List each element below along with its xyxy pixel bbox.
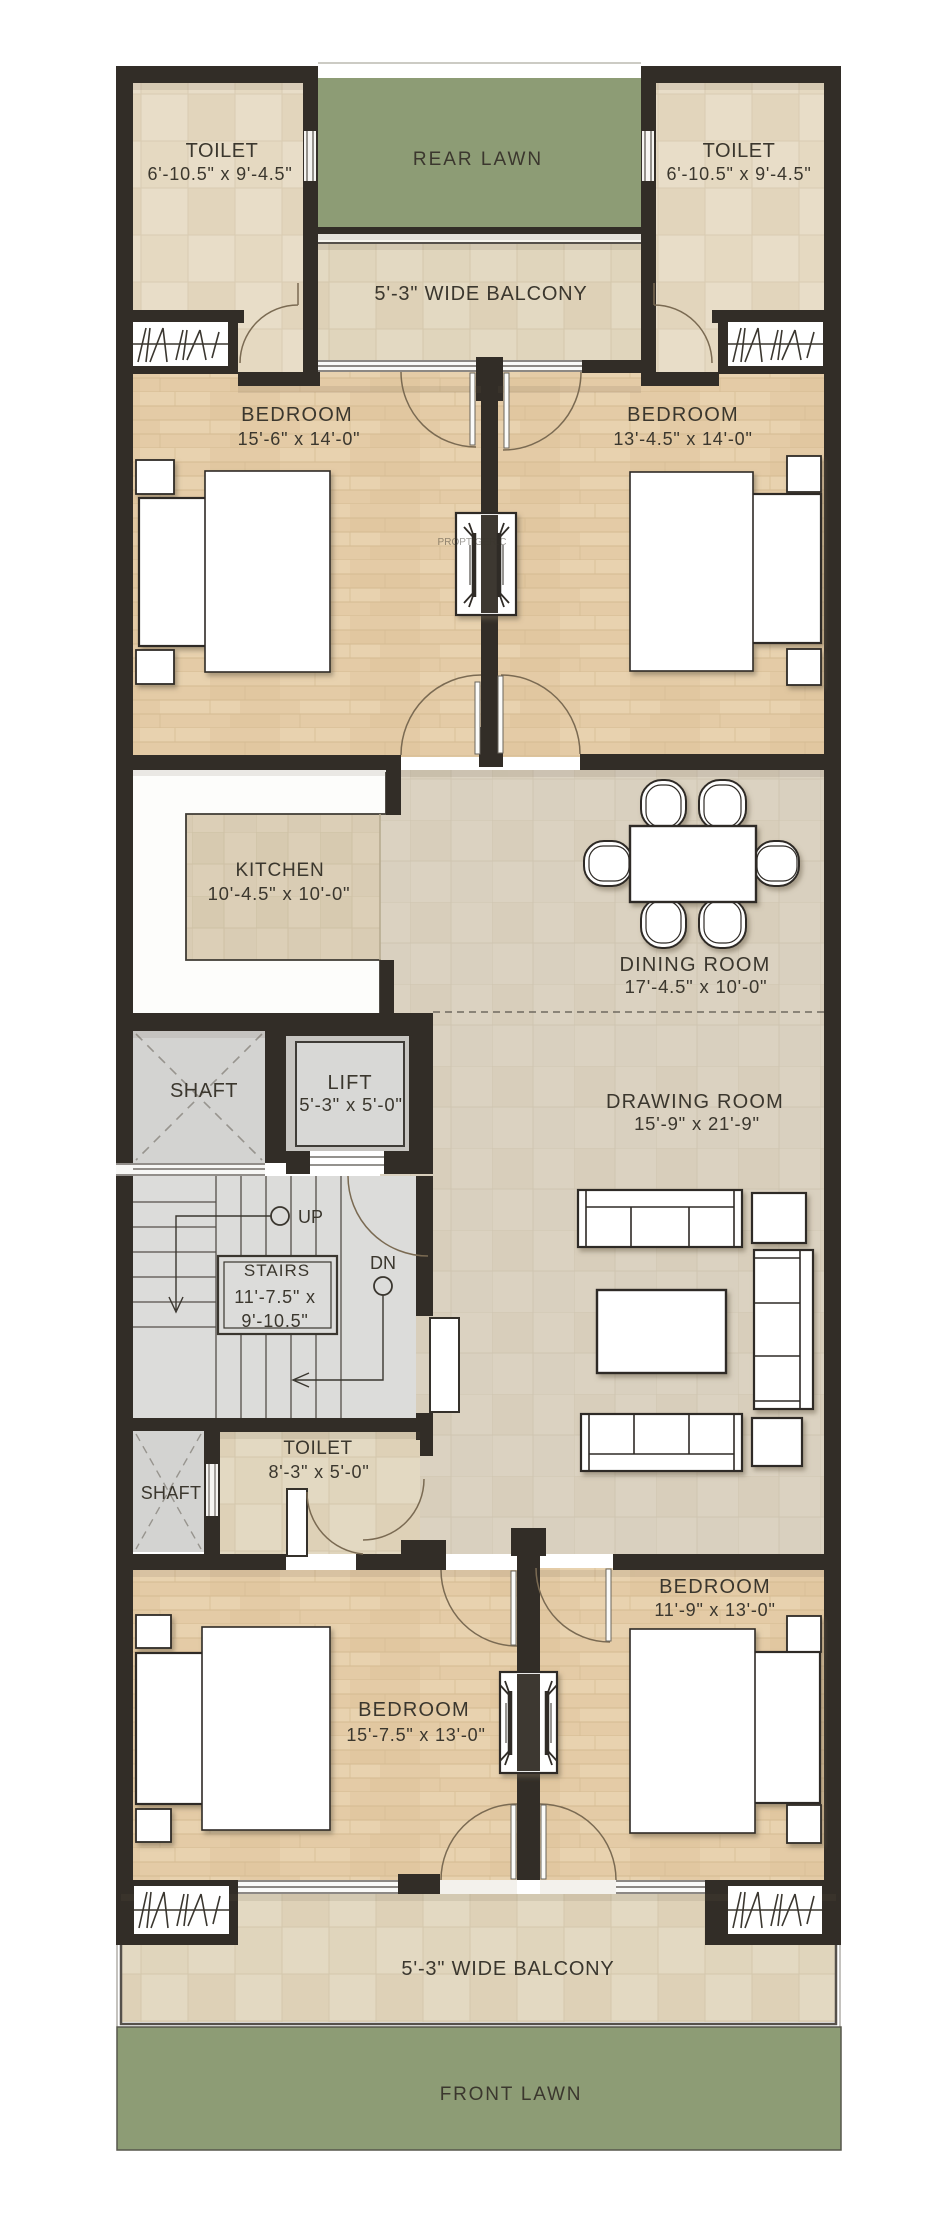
svg-text:6'-10.5" x 9'-4.5": 6'-10.5" x 9'-4.5" bbox=[666, 164, 811, 184]
svg-text:SHAFT: SHAFT bbox=[170, 1080, 238, 1102]
svg-text:BEDROOM: BEDROOM bbox=[627, 404, 739, 426]
svg-text:STAIRS: STAIRS bbox=[244, 1261, 310, 1280]
svg-text:6'-10.5" x 9'-4.5": 6'-10.5" x 9'-4.5" bbox=[147, 164, 292, 184]
svg-text:13'-4.5" x 14'-0": 13'-4.5" x 14'-0" bbox=[613, 429, 752, 449]
svg-text:17'-4.5" x 10'-0": 17'-4.5" x 10'-0" bbox=[625, 976, 768, 997]
svg-text:10'-4.5" x 10'-0": 10'-4.5" x 10'-0" bbox=[208, 883, 351, 904]
svg-text:DRAWING ROOM: DRAWING ROOM bbox=[606, 1091, 784, 1113]
svg-text:15'-6" x 14'-0": 15'-6" x 14'-0" bbox=[238, 429, 361, 449]
svg-text:LIFT: LIFT bbox=[327, 1072, 372, 1094]
svg-text:TOILET: TOILET bbox=[186, 140, 259, 162]
svg-text:9'-10.5": 9'-10.5" bbox=[241, 1311, 308, 1331]
svg-text:5'-3" WIDE BALCONY: 5'-3" WIDE BALCONY bbox=[374, 283, 587, 305]
svg-text:BEDROOM: BEDROOM bbox=[659, 1576, 771, 1598]
svg-text:FRONT LAWN: FRONT LAWN bbox=[440, 2084, 583, 2105]
svg-text:REAR LAWN: REAR LAWN bbox=[413, 149, 543, 170]
svg-text:UP: UP bbox=[298, 1207, 323, 1227]
svg-text:15'-9" x 21'-9": 15'-9" x 21'-9" bbox=[634, 1113, 760, 1134]
svg-text:5'-3" WIDE BALCONY: 5'-3" WIDE BALCONY bbox=[401, 1958, 614, 1980]
svg-text:15'-7.5" x 13'-0": 15'-7.5" x 13'-0" bbox=[346, 1725, 485, 1745]
svg-text:DINING ROOM: DINING ROOM bbox=[620, 954, 771, 976]
svg-text:BEDROOM: BEDROOM bbox=[241, 404, 353, 426]
svg-text:5'-3" x 5'-0": 5'-3" x 5'-0" bbox=[299, 1094, 403, 1115]
svg-text:SHAFT: SHAFT bbox=[141, 1483, 202, 1503]
svg-text:TOILET: TOILET bbox=[703, 140, 776, 162]
svg-text:PROPTIGER.C: PROPTIGER.C bbox=[438, 537, 507, 548]
svg-text:DN: DN bbox=[370, 1253, 396, 1273]
svg-text:TOILET: TOILET bbox=[283, 1438, 352, 1459]
svg-text:11'-9" x 13'-0": 11'-9" x 13'-0" bbox=[654, 1600, 775, 1620]
svg-text:KITCHEN: KITCHEN bbox=[236, 860, 325, 881]
svg-text:BEDROOM: BEDROOM bbox=[358, 1699, 470, 1721]
svg-text:8'-3" x 5'-0": 8'-3" x 5'-0" bbox=[268, 1462, 369, 1482]
svg-text:11'-7.5" x: 11'-7.5" x bbox=[234, 1287, 316, 1307]
